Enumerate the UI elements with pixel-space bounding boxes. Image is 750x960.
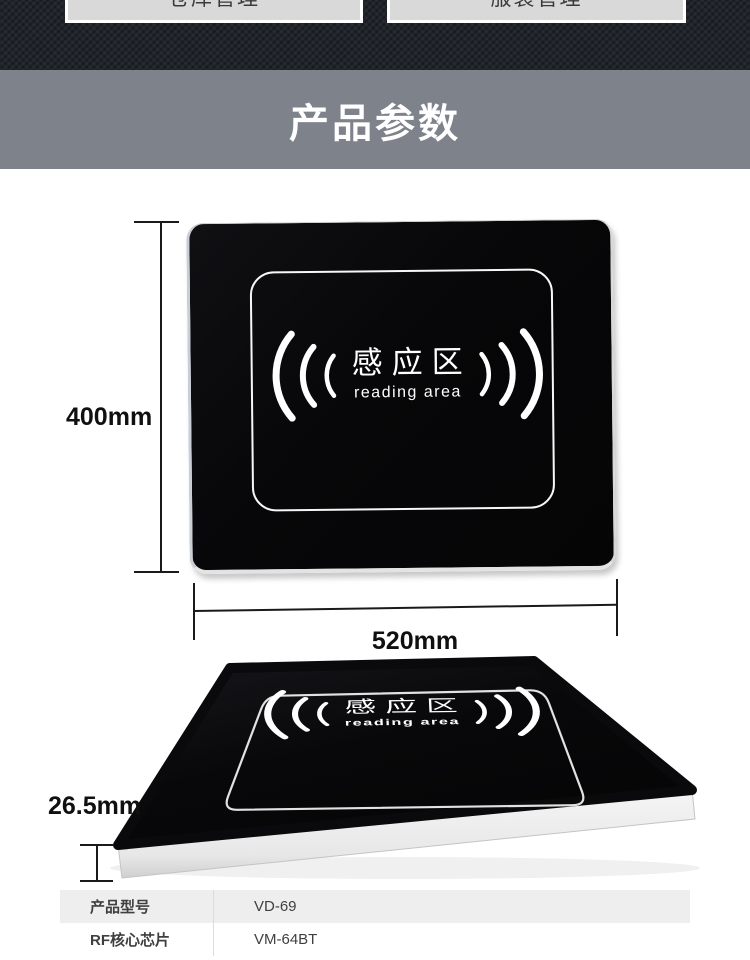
width-dimension-tick-left (193, 583, 195, 640)
signal-arc-icon (303, 347, 315, 405)
nav-button-warehouse[interactable]: 仓库管理 (65, 0, 363, 23)
signal-arc-icon (523, 332, 540, 416)
reading-area-emblem: 感应区 reading area (275, 328, 540, 423)
nav-button-clothing[interactable]: 服装管理 (387, 0, 686, 23)
section-banner: 产品参数 (0, 70, 750, 169)
table-row: 产品型号 VD-69 (60, 890, 690, 923)
reader-side-view-image: 感应区 reading area (0, 640, 750, 890)
table-row: RF核心芯片 VM-64BT (60, 923, 690, 956)
width-dimension-tick-right (616, 579, 618, 636)
spec-label-chip: RF核心芯片 (60, 923, 213, 956)
reading-area-text-cn: 感应区 (344, 696, 467, 716)
nav-button-clothing-label: 服装管理 (491, 0, 583, 12)
reading-area-text-cn: 感应区 (351, 344, 471, 380)
height-dimension-line (160, 222, 162, 573)
width-dimension-line (193, 604, 617, 612)
spec-label-model: 产品型号 (60, 890, 213, 923)
reader-front-view-image: 感应区 reading area (186, 219, 616, 574)
thickness-dimension-label: 26.5mm (48, 792, 141, 821)
signal-arc-icon (482, 354, 489, 394)
thickness-dimension-line (96, 845, 98, 882)
signal-arc-icon (276, 334, 293, 418)
spec-value-chip: VM-64BT (213, 923, 690, 956)
signal-arc-icon (501, 345, 513, 403)
nav-button-warehouse-label: 仓库管理 (168, 0, 260, 12)
signal-arc-icon (327, 356, 334, 396)
reading-area-text-en: reading area (345, 716, 461, 728)
thickness-dimension-cap-bottom (80, 880, 113, 882)
spec-value-model: VD-69 (213, 890, 690, 923)
height-dimension-label: 400mm (66, 403, 152, 432)
height-dimension-cap-bottom (134, 571, 179, 573)
top-nav-bar: 仓库管理 服装管理 (0, 0, 750, 70)
spec-table: 产品型号 VD-69 RF核心芯片 VM-64BT (60, 890, 690, 956)
height-dimension-cap-top (134, 221, 179, 223)
reading-area-text-en: reading area (354, 383, 462, 401)
section-title: 产品参数 (289, 91, 461, 149)
product-detail-page: 仓库管理 服装管理 产品参数 400mm 感应区 reading area 52… (0, 0, 750, 960)
thickness-dimension-cap-top (80, 844, 113, 846)
